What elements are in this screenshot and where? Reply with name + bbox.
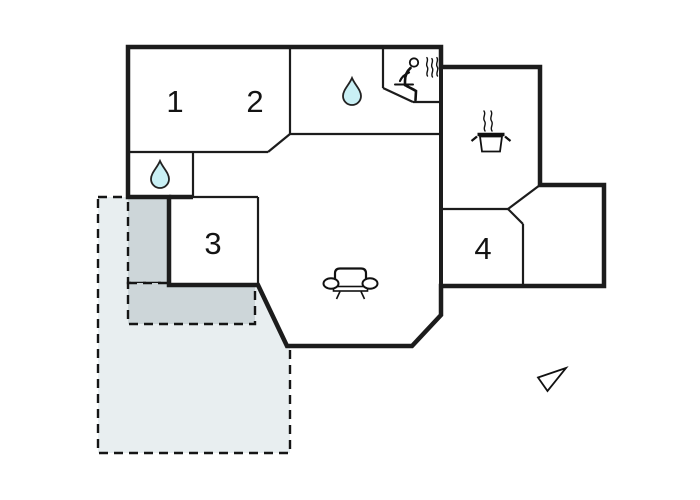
floor-plan: 1 2 3 4 [0, 0, 700, 500]
floor-plan-page: 1 2 3 4 [0, 0, 700, 500]
covered-terrace-left [128, 197, 169, 283]
room-label-2: 2 [246, 84, 263, 119]
pot-body [480, 137, 502, 152]
covered-terrace-bottom [128, 283, 255, 324]
sofa-armrest [324, 278, 339, 288]
sauna-person-head [410, 58, 418, 66]
sofa-armrest [363, 278, 378, 288]
sofa-seat [334, 287, 368, 292]
room-label-1: 1 [166, 84, 183, 119]
room-label-4: 4 [474, 231, 491, 266]
room-label-3: 3 [204, 226, 221, 261]
